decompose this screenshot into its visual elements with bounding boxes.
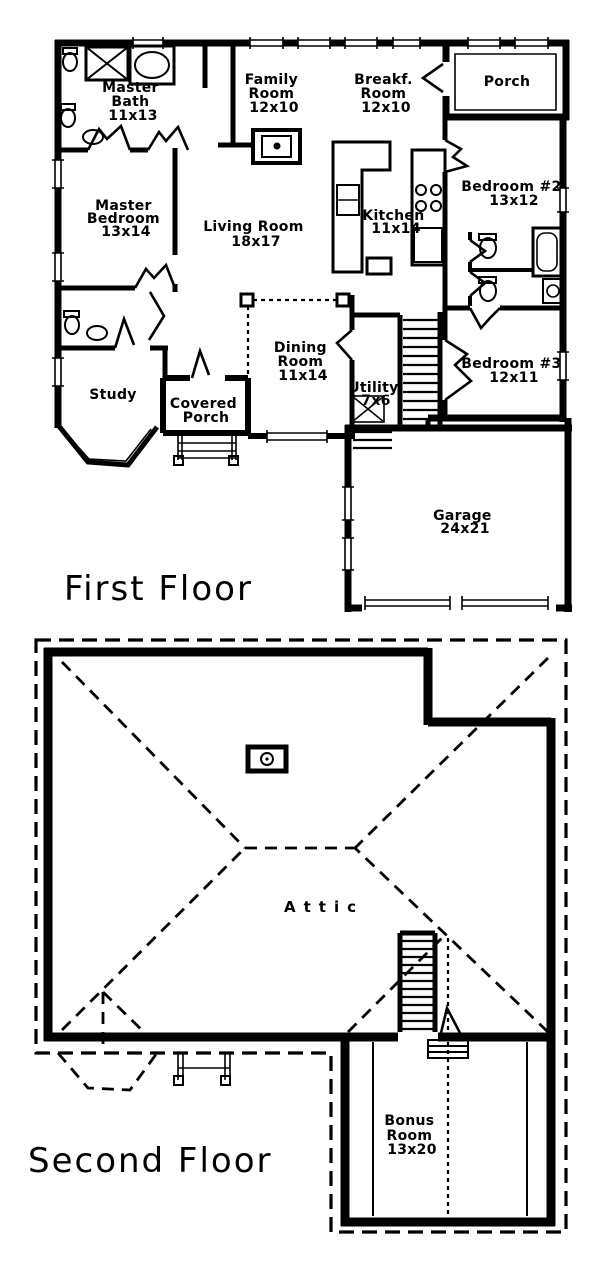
- room-label-bedroom-3: Bedroom #3 12x11: [461, 356, 566, 386]
- stair-walls: [400, 933, 435, 1032]
- bathtub-icon: [135, 52, 169, 78]
- room-label-living-room: Living Room 18x17: [203, 219, 309, 250]
- toilet-icon: [63, 53, 77, 71]
- toilet-icon: [64, 311, 79, 317]
- window-icon: [393, 37, 420, 49]
- floor-title-second: Second Floor: [28, 1141, 273, 1181]
- window-icon: [52, 253, 64, 281]
- covered-porch-steps: [178, 435, 236, 460]
- door-swing-icon: [470, 272, 485, 296]
- toilet-icon: [65, 316, 79, 334]
- door-swing-icon: [445, 140, 467, 172]
- door-swing-icon: [115, 319, 134, 348]
- window-icon: [345, 37, 377, 49]
- window-icon: [342, 538, 354, 570]
- exterior-walls: [44, 648, 555, 1226]
- room-label-bedroom-2: Bedroom #2 13x12: [461, 179, 566, 209]
- window-icon: [52, 160, 64, 188]
- first-floor-plan: Master Bath 11x13 Family Room 12x10 Brea…: [52, 37, 572, 612]
- door-swing-icon: [423, 64, 443, 92]
- door-swing-icon: [148, 127, 188, 150]
- sink-icon: [87, 326, 107, 340]
- door-swing-icon: [470, 308, 500, 328]
- room-label-bonus-room: Bonus Room 13x20: [384, 1113, 439, 1158]
- toilet-icon: [61, 104, 75, 110]
- stair-treads: [403, 320, 438, 419]
- window-icon: [250, 37, 283, 49]
- bathtub-icon: [537, 233, 557, 271]
- garage-entry-steps: [353, 432, 392, 448]
- garage-door: [365, 596, 548, 610]
- window-icon: [468, 37, 500, 49]
- room-label-breakf-room: Breakf. Room 12x10: [354, 72, 418, 116]
- door-swing-icon: [337, 330, 352, 360]
- stair-treads: [402, 941, 433, 1029]
- door-swing-icon: [470, 240, 485, 262]
- fireplace-icon: [253, 130, 300, 163]
- staircase: [403, 320, 438, 419]
- room-label-master-bath: Master Bath 11x13: [102, 80, 164, 124]
- window-icon: [298, 37, 330, 49]
- room-label-kitchen: Kitchen 11x14: [362, 208, 429, 237]
- sink-icon: [547, 285, 559, 297]
- floor-plan-image: Master Bath 11x13 Family Room 12x10 Brea…: [0, 0, 600, 1273]
- attic-access-icon: [248, 747, 286, 771]
- exterior-walls: [55, 40, 572, 612]
- window-icon: [515, 37, 548, 49]
- door-swing-icon: [192, 351, 209, 378]
- door-swing-icon: [135, 265, 175, 288]
- stove-icon: [416, 185, 426, 195]
- stove-icon: [431, 201, 441, 211]
- room-label-attic: Attic: [284, 898, 364, 916]
- bay-window: [58, 425, 157, 465]
- east-bath-fixtures: [479, 228, 563, 303]
- room-label-porch: Porch: [484, 74, 531, 90]
- room-label-covered-porch: Covered Porch: [170, 396, 242, 426]
- room-label-dining-room: Dining Room 11x14: [274, 340, 332, 384]
- roof-hip-lines: [62, 658, 548, 1050]
- island-counter: [367, 258, 391, 274]
- hall-bath-fixtures: [64, 311, 107, 340]
- window-icon: [267, 430, 327, 443]
- stove-icon: [431, 185, 441, 195]
- window-icon: [342, 487, 354, 520]
- room-label-utility: Utility 7x6: [348, 380, 404, 409]
- room-label-garage: Garage 24x21: [433, 508, 497, 537]
- shower-icon: [86, 47, 128, 80]
- bathroom-partitions: [470, 232, 533, 306]
- room-label-master-bedroom: Master Bedroom 13x14: [87, 198, 165, 240]
- second-floor-plan: Attic Bonus Room 13x20 Second Floor: [28, 640, 566, 1232]
- column: [241, 294, 253, 306]
- floor-title-first: First Floor: [64, 569, 253, 609]
- bay-window-outline: [58, 1053, 157, 1090]
- window-icon: [52, 358, 64, 386]
- room-label-family-room: Family Room 12x10: [245, 72, 304, 116]
- door-swing-icon: [149, 292, 164, 340]
- staircase: [400, 933, 468, 1058]
- toilet-icon: [479, 234, 496, 240]
- counter: [333, 142, 390, 272]
- room-label-study: Study: [89, 387, 136, 403]
- toilet-icon: [63, 48, 77, 54]
- toilet-icon: [61, 109, 75, 127]
- column: [337, 294, 349, 306]
